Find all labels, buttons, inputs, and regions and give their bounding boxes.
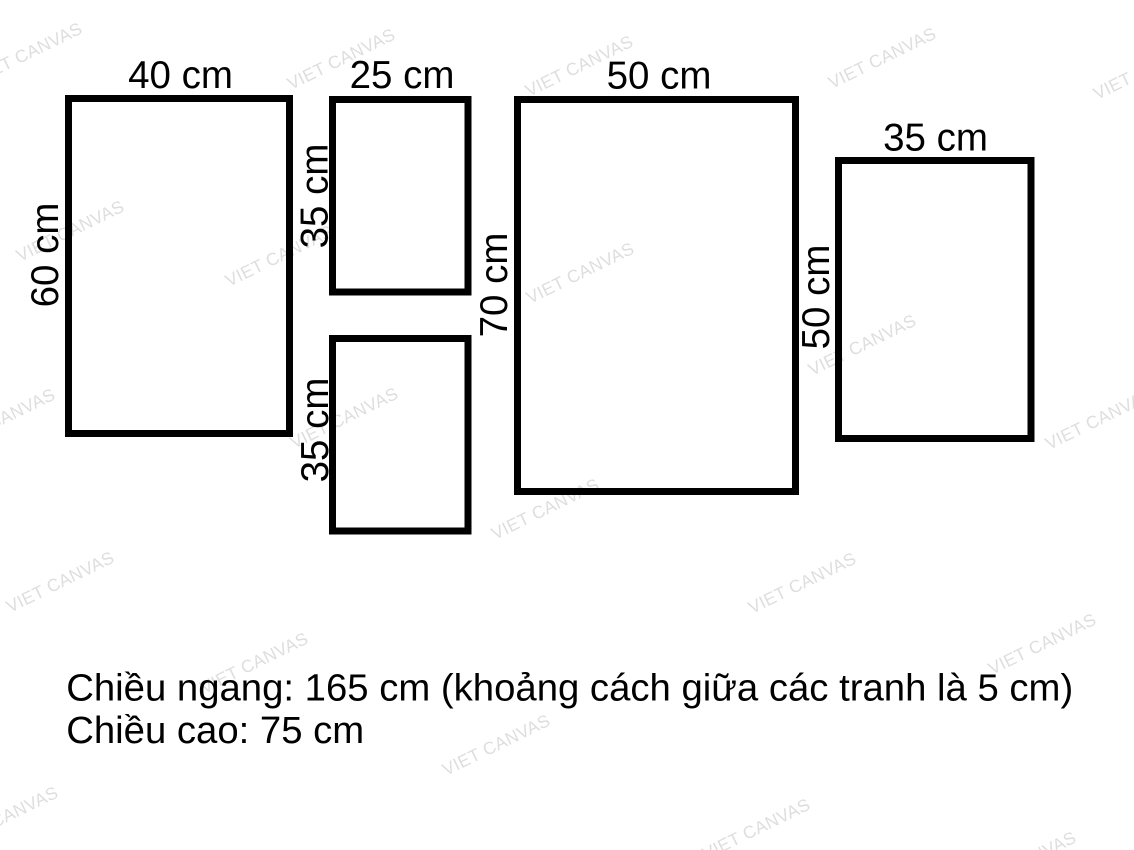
svg-text:50 cm: 50 cm (607, 55, 712, 98)
svg-text:70 cm: 70 cm (473, 233, 516, 338)
svg-text:60 cm: 60 cm (24, 203, 67, 308)
svg-text:50 cm: 50 cm (795, 245, 838, 350)
svg-text:40 cm: 40 cm (128, 54, 233, 97)
svg-text:35 cm: 35 cm (883, 117, 988, 160)
svg-text:Chiều ngang: 165 cm (khoảng cá: Chiều ngang: 165 cm (khoảng cách giữa cá… (66, 667, 1073, 710)
svg-text:35 cm: 35 cm (294, 378, 337, 483)
svg-text:25 cm: 25 cm (350, 54, 455, 97)
svg-text:35 cm: 35 cm (294, 144, 337, 249)
svg-text:Chiều cao: 75 cm: Chiều cao: 75 cm (66, 709, 364, 752)
